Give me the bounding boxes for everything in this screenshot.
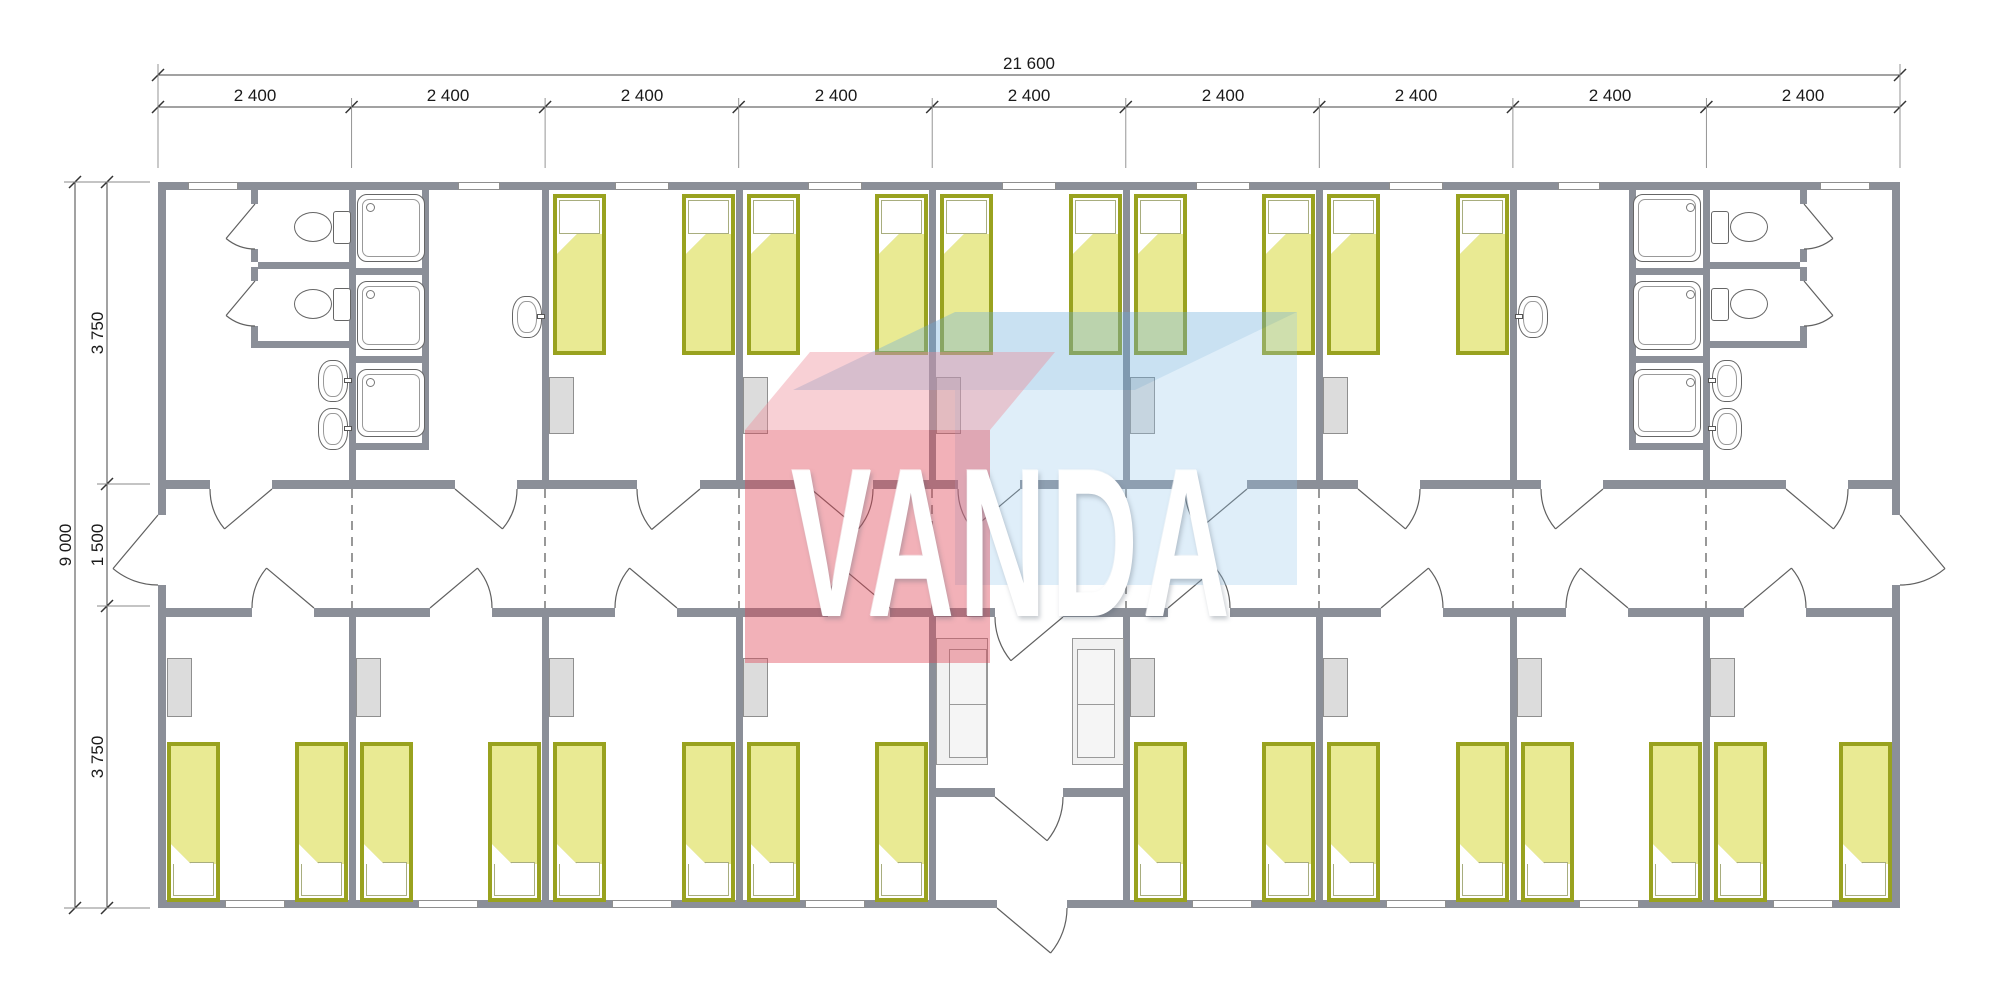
dimension-segment: 3 750 — [88, 736, 108, 779]
dimension-segment: 2 400 — [1202, 86, 1245, 106]
logo-text: VANDA — [791, 437, 1235, 649]
dimension-total-width: 21 600 — [1003, 54, 1055, 74]
dimension-segment: 1 500 — [88, 524, 108, 567]
dimension-segment: 2 400 — [621, 86, 664, 106]
floor-plan: VANDA 21 6002 4002 4002 4002 4002 4002 4… — [0, 0, 2000, 999]
dimension-total-height: 9 000 — [56, 524, 76, 567]
dimension-segment: 2 400 — [1395, 86, 1438, 106]
dimension-segment: 2 400 — [1782, 86, 1825, 106]
dimension-segment: 2 400 — [427, 86, 470, 106]
dimension-segment: 2 400 — [1008, 86, 1051, 106]
dimension-segment: 3 750 — [88, 312, 108, 355]
dimension-segment: 2 400 — [1589, 86, 1632, 106]
dimension-segment: 2 400 — [815, 86, 858, 106]
dimension-segment: 2 400 — [234, 86, 277, 106]
